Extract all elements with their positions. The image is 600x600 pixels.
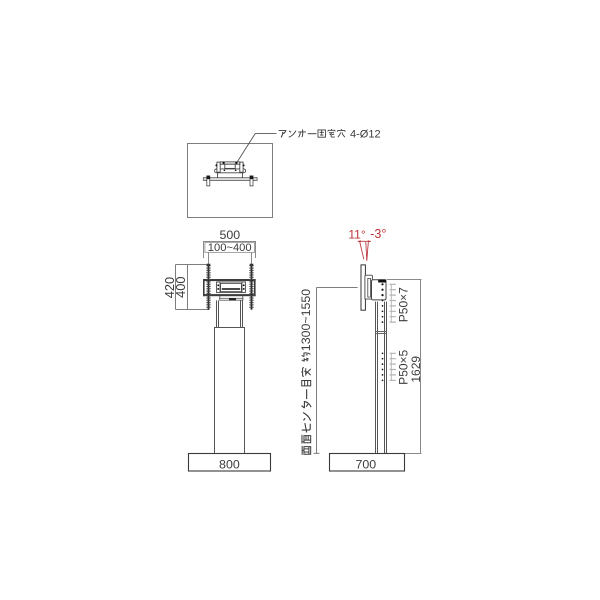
svg-text:800: 800 <box>219 457 240 471</box>
svg-text:700: 700 <box>355 458 376 472</box>
svg-text:100~400: 100~400 <box>208 242 252 254</box>
svg-text:P50×7: P50×7 <box>397 287 411 322</box>
svg-text:500: 500 <box>219 228 240 242</box>
svg-text:4-Ø12: 4-Ø12 <box>350 129 381 141</box>
svg-text:-3°: -3° <box>370 227 386 241</box>
svg-text:11°: 11° <box>348 227 365 241</box>
svg-text:400: 400 <box>173 277 188 298</box>
svg-text:1300~1550: 1300~1550 <box>299 289 313 351</box>
